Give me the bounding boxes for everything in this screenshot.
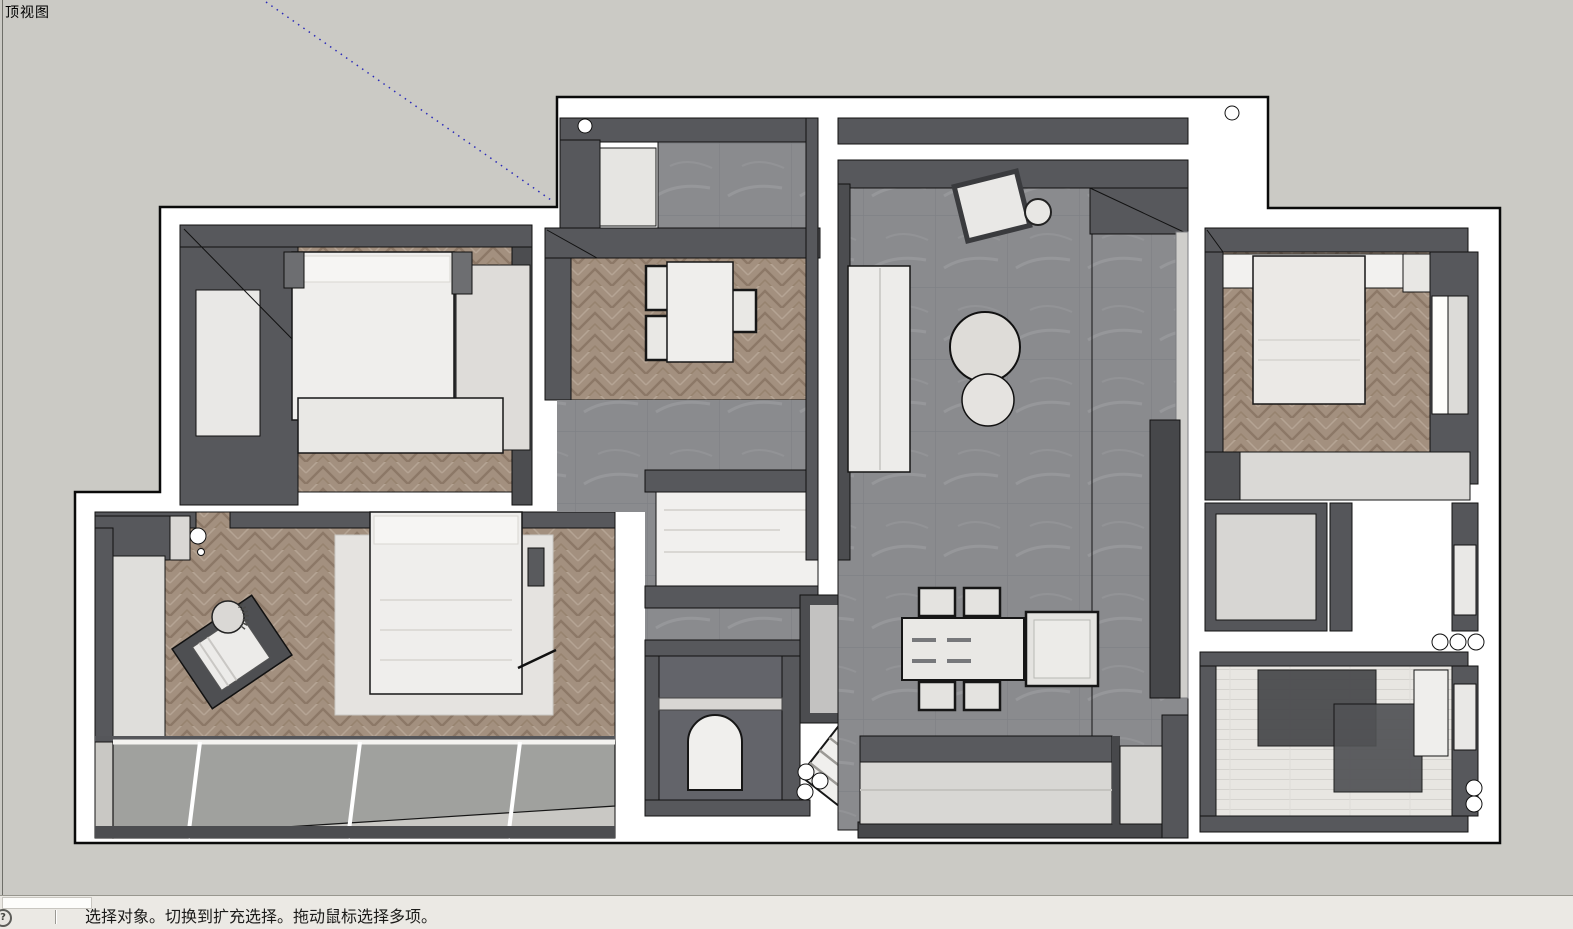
measurement-box[interactable] xyxy=(2,897,92,909)
sketchup-window: 顶视图 xyxy=(0,0,1573,929)
circled-question-icon[interactable]: ? xyxy=(0,909,12,927)
toilet[interactable] xyxy=(688,715,742,790)
plumbing-symbol xyxy=(1466,796,1482,812)
door-swing-symbol xyxy=(578,119,592,133)
statusbar: ? 选择对象。切换到扩充选择。拖动鼠标选择多项。 xyxy=(0,895,1573,929)
window-right[interactable] xyxy=(1454,545,1476,615)
table[interactable] xyxy=(667,262,733,362)
bedroom-bottom-left[interactable] xyxy=(95,512,615,838)
alcove-wall[interactable] xyxy=(645,470,818,492)
shoe-cabinet[interactable] xyxy=(600,148,656,226)
counter-divider xyxy=(1112,736,1120,824)
round-stool[interactable] xyxy=(1025,199,1051,225)
shower-room[interactable] xyxy=(1200,634,1484,832)
bathroom-middle[interactable] xyxy=(645,640,810,816)
wall[interactable] xyxy=(1200,816,1468,832)
wall[interactable] xyxy=(1205,252,1223,452)
bed-pillows xyxy=(374,516,518,544)
nightstand[interactable] xyxy=(528,548,544,586)
plumbing-symbol xyxy=(1466,780,1482,796)
bedroom-top-right[interactable] xyxy=(1205,228,1478,500)
door-swing-symbol-small xyxy=(198,549,205,556)
bedroom-top-left[interactable] xyxy=(180,225,532,505)
counter-back[interactable] xyxy=(860,736,1112,762)
dresser[interactable] xyxy=(1240,452,1470,500)
door-swing-symbol xyxy=(1225,106,1239,120)
tv-cabinet[interactable] xyxy=(1150,420,1180,698)
wall[interactable] xyxy=(560,140,600,230)
plumbing-symbol xyxy=(812,773,828,789)
plumbing-symbol xyxy=(1468,634,1484,650)
wall[interactable] xyxy=(645,656,659,800)
vanity-counter[interactable] xyxy=(1216,514,1316,620)
floorplan-drawing[interactable] xyxy=(0,0,1573,895)
wall[interactable] xyxy=(545,258,571,400)
wall[interactable] xyxy=(645,640,810,656)
living-room[interactable] xyxy=(838,118,1188,838)
chair[interactable] xyxy=(964,588,1000,616)
balcony-parapet xyxy=(95,826,615,838)
wall[interactable] xyxy=(1205,228,1468,252)
entry-hall[interactable] xyxy=(560,118,818,230)
wall[interactable] xyxy=(782,656,800,800)
wall[interactable] xyxy=(1162,715,1188,838)
wall[interactable] xyxy=(838,118,1188,144)
entry-floor[interactable] xyxy=(658,140,818,228)
alcove-wall[interactable] xyxy=(645,586,818,608)
round-stool[interactable] xyxy=(212,601,244,633)
tub[interactable] xyxy=(1414,670,1448,756)
view-label: 顶视图 xyxy=(5,2,50,22)
kitchen[interactable] xyxy=(858,736,1182,838)
wall[interactable] xyxy=(1330,503,1352,631)
window-left[interactable] xyxy=(196,290,260,436)
door-swing-symbol xyxy=(190,528,206,544)
coffee-table-small[interactable] xyxy=(962,374,1014,426)
status-message: 选择对象。切换到扩充选择。拖动鼠标选择多项。 xyxy=(85,903,437,927)
inference-guide-line xyxy=(266,2,551,200)
nightstand[interactable] xyxy=(1403,254,1430,292)
plumbing-symbol xyxy=(1450,634,1466,650)
balcony[interactable] xyxy=(95,742,615,838)
wall[interactable] xyxy=(806,118,818,560)
chair[interactable] xyxy=(919,588,955,616)
plumbing-symbol xyxy=(798,764,814,780)
chair[interactable] xyxy=(964,682,1000,710)
wall[interactable] xyxy=(560,118,818,142)
chair[interactable] xyxy=(919,682,955,710)
storage-cabinet[interactable] xyxy=(656,492,818,586)
wardrobe-door[interactable] xyxy=(170,516,190,560)
bed[interactable] xyxy=(1253,256,1365,404)
shelf[interactable] xyxy=(659,698,782,710)
window-right-glass xyxy=(1448,296,1468,414)
canvas-left-edge xyxy=(2,0,3,895)
shower-glass[interactable] xyxy=(1334,704,1422,792)
bed-pillows xyxy=(296,256,450,282)
dining-table[interactable] xyxy=(902,618,1024,680)
nightstand[interactable] xyxy=(452,252,472,294)
wardrobe-front[interactable] xyxy=(113,556,165,766)
wall[interactable] xyxy=(645,800,810,816)
wall[interactable] xyxy=(1200,666,1216,816)
bench[interactable] xyxy=(298,398,503,453)
statusbar-separator xyxy=(55,910,56,924)
desk[interactable] xyxy=(954,171,1030,241)
nightstand[interactable] xyxy=(284,252,304,288)
viewport-canvas[interactable]: 顶视图 xyxy=(0,0,1573,895)
plumbing-symbol xyxy=(1432,634,1448,650)
counter-top[interactable] xyxy=(860,762,1112,824)
plumbing-symbol xyxy=(797,784,813,800)
window-right[interactable] xyxy=(1454,684,1476,750)
study-room[interactable] xyxy=(545,228,820,400)
wall[interactable] xyxy=(180,225,532,247)
coffee-table-large[interactable] xyxy=(950,312,1020,382)
dresser-side[interactable] xyxy=(1205,452,1240,500)
wall[interactable] xyxy=(545,228,820,258)
window-right[interactable] xyxy=(1432,296,1448,414)
end-chair-seat xyxy=(1034,620,1090,678)
wall[interactable] xyxy=(1200,652,1468,666)
tall-cabinet-glass xyxy=(810,605,838,713)
